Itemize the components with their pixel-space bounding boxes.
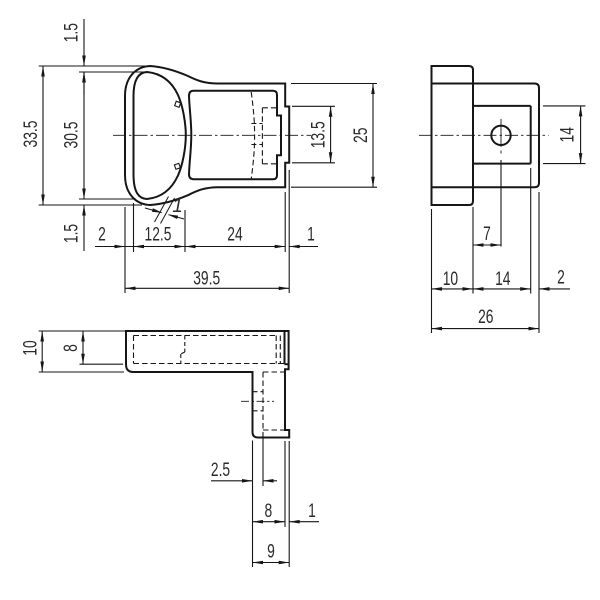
svg-text:14: 14 bbox=[558, 127, 579, 143]
svg-text:33.5: 33.5 bbox=[21, 121, 42, 148]
svg-text:1: 1 bbox=[308, 501, 316, 522]
svg-text:10: 10 bbox=[21, 340, 42, 355]
svg-text:1: 1 bbox=[172, 196, 183, 217]
svg-text:8: 8 bbox=[61, 344, 82, 352]
svg-text:2: 2 bbox=[98, 225, 106, 246]
svg-text:12.5: 12.5 bbox=[145, 225, 172, 246]
svg-text:1: 1 bbox=[307, 225, 315, 246]
svg-text:7: 7 bbox=[483, 224, 491, 245]
svg-text:2.5: 2.5 bbox=[211, 460, 230, 481]
svg-text:1.5: 1.5 bbox=[62, 23, 83, 42]
svg-text:13.5: 13.5 bbox=[309, 121, 330, 148]
svg-text:30.5: 30.5 bbox=[62, 122, 83, 149]
svg-text:8: 8 bbox=[265, 501, 273, 522]
svg-text:14: 14 bbox=[495, 269, 511, 290]
svg-text:9: 9 bbox=[267, 542, 275, 563]
svg-text:1.5: 1.5 bbox=[62, 224, 83, 243]
svg-text:10: 10 bbox=[443, 269, 458, 290]
svg-text:25: 25 bbox=[351, 128, 372, 143]
svg-text:24: 24 bbox=[227, 225, 243, 246]
svg-text:2: 2 bbox=[557, 268, 565, 289]
svg-text:26: 26 bbox=[478, 307, 493, 328]
svg-text:39.5: 39.5 bbox=[193, 269, 220, 290]
